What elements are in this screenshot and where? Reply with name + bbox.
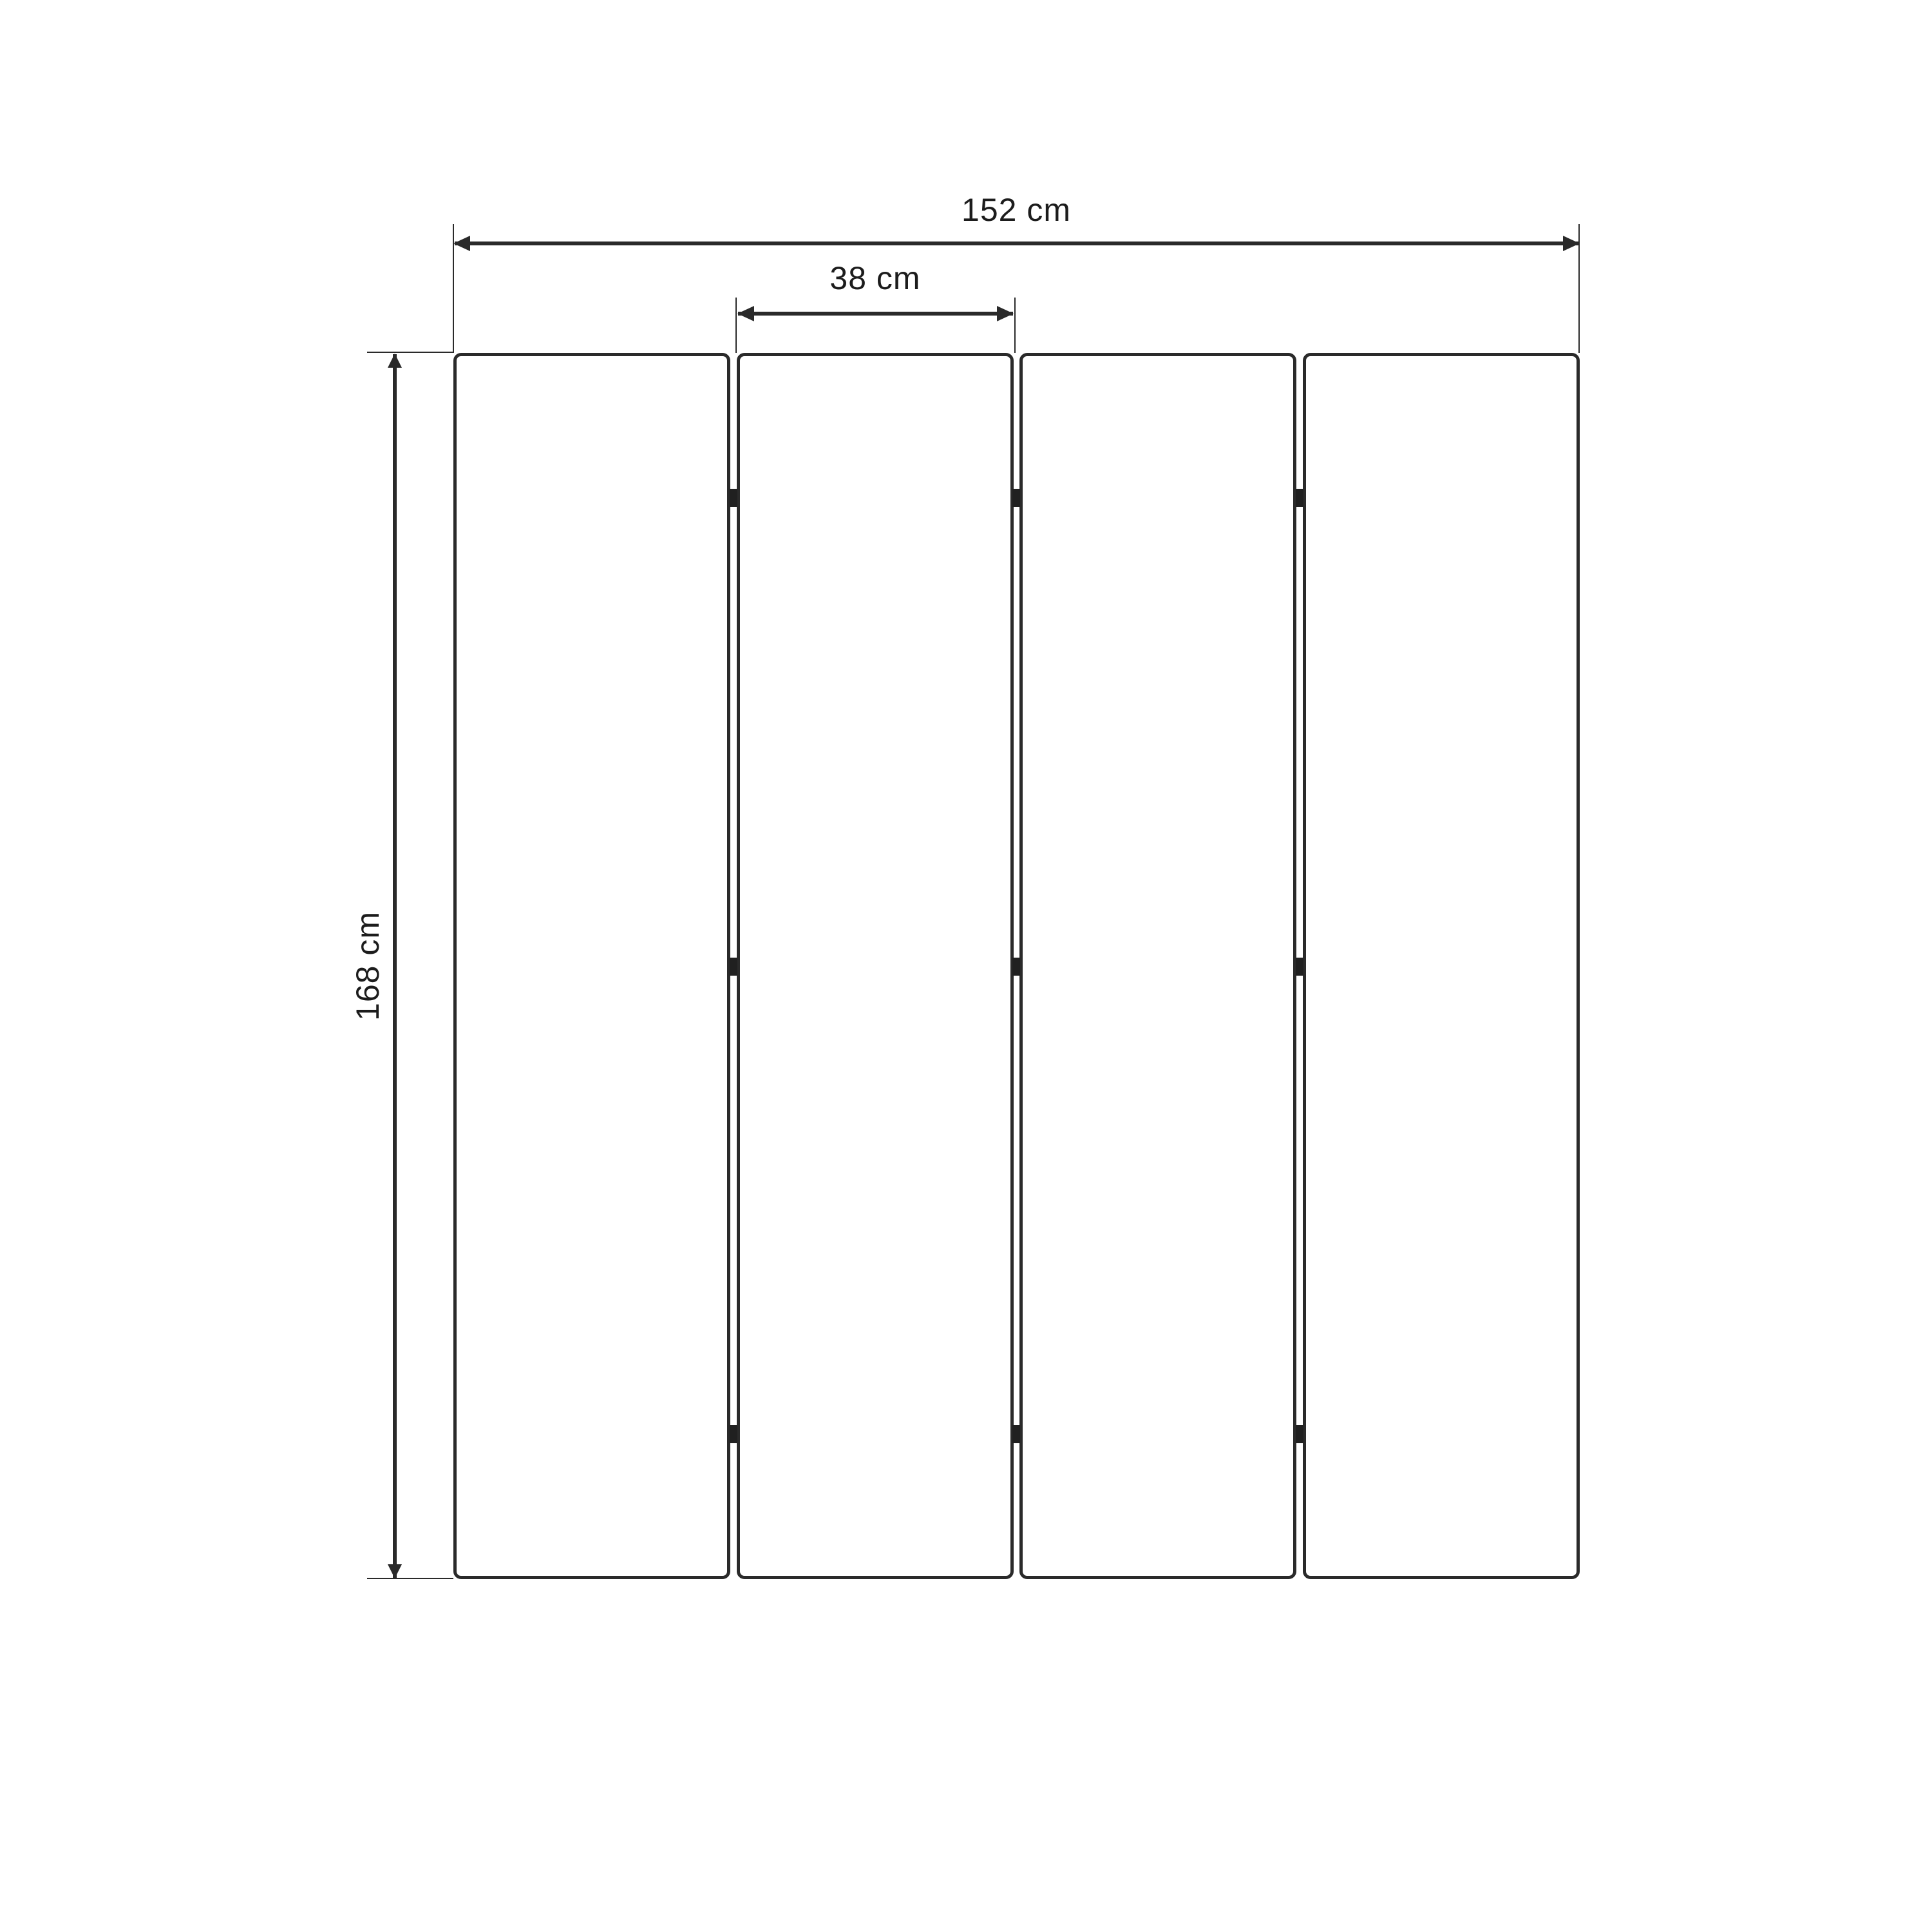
screen-panel-3	[1019, 353, 1296, 1579]
hinge	[1296, 489, 1303, 507]
panel-width-dimension-label: 38 cm	[829, 261, 920, 295]
height-dimension-label: 168 cm	[351, 911, 384, 1021]
height-extension-line-bottom	[367, 1578, 453, 1579]
dimension-diagram: 168 cm 152 cm 38 cm	[0, 0, 1932, 1932]
screen-panel-1	[453, 353, 730, 1579]
hinge	[1296, 958, 1303, 976]
screen-panel-2	[737, 353, 1014, 1579]
hinge	[1296, 1425, 1303, 1443]
arrowhead-right-icon	[997, 306, 1014, 321]
panel-width-extension-line-right	[1014, 298, 1016, 353]
arrowhead-up-icon	[388, 354, 402, 368]
arrowhead-down-icon	[388, 1564, 402, 1578]
height-dimension-line	[393, 354, 397, 1578]
total-width-dimension-line	[455, 241, 1578, 245]
arrowhead-left-icon	[453, 236, 470, 251]
hinge	[1012, 1425, 1020, 1443]
hinge	[730, 1425, 737, 1443]
panel-width-extension-line-left	[735, 298, 737, 353]
height-extension-line-top	[367, 352, 453, 353]
panel-width-dimension-line	[738, 312, 1013, 316]
total-width-dimension-label: 152 cm	[961, 193, 1071, 227]
hinge	[1012, 489, 1020, 507]
arrowhead-right-icon	[1563, 236, 1580, 251]
hinge	[1012, 958, 1020, 976]
hinge	[730, 489, 737, 507]
hinge	[730, 958, 737, 976]
arrowhead-left-icon	[737, 306, 754, 321]
screen-panel-4	[1303, 353, 1580, 1579]
